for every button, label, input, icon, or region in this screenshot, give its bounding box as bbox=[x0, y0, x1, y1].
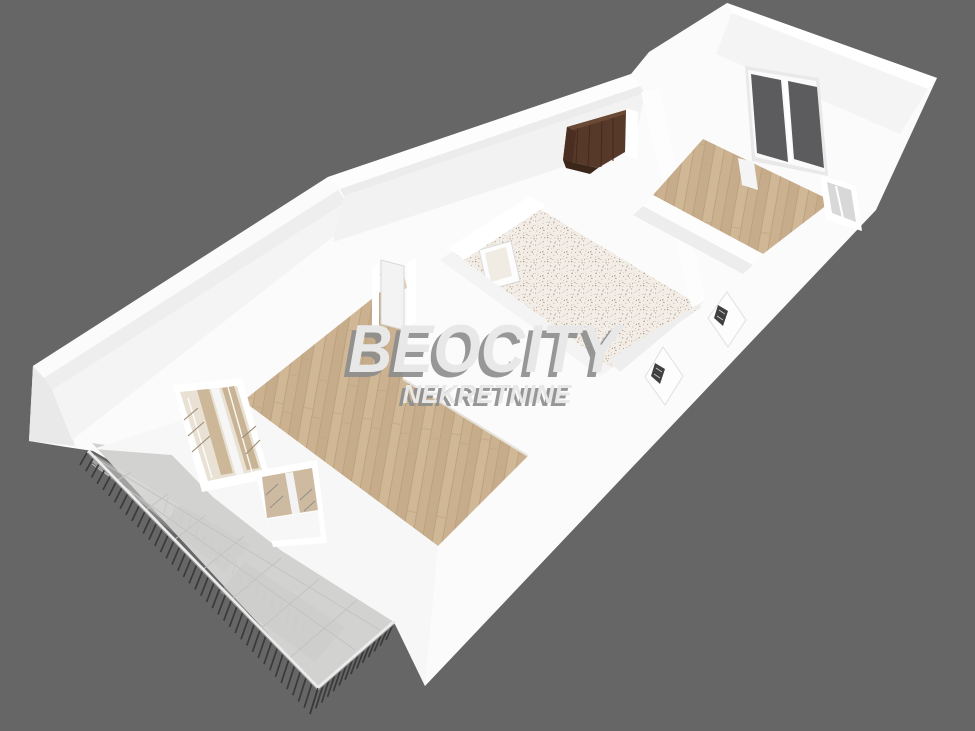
svg-text:BEOCITY: BEOCITY bbox=[348, 310, 625, 387]
svg-text:NEKRETNINE: NEKRETNINE bbox=[402, 379, 572, 409]
